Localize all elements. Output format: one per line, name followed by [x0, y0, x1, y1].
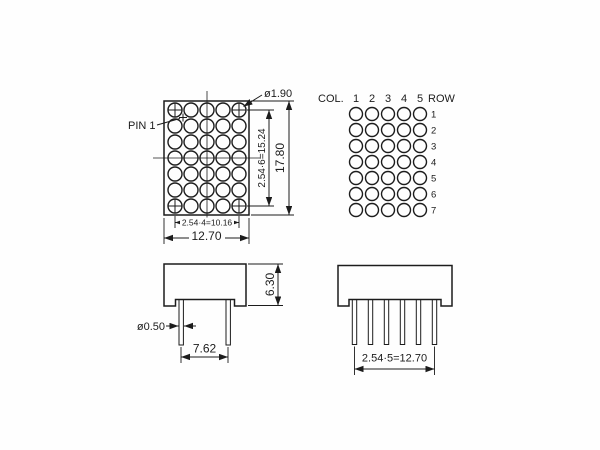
row-header-label: ROW	[428, 93, 456, 105]
pin-diameter-label: ø0.50	[137, 321, 165, 333]
pin-3	[384, 300, 388, 345]
datasheet-drawing-page: PIN 1 ø1.90 2.54·6=15.24 17.80 2.54	[0, 0, 600, 450]
row-number-3: 3	[431, 142, 436, 153]
row-number-7: 7	[431, 206, 436, 217]
bottom-view: 2.54·5=12.70	[338, 266, 452, 376]
pin-spacing-label: 7.62	[193, 342, 217, 356]
dot-matrix-technical-drawing: PIN 1 ø1.90 2.54·6=15.24 17.80 2.54	[0, 0, 600, 450]
dot-row	[350, 172, 427, 185]
row-number-1: 1	[431, 110, 436, 121]
row-number-2: 2	[431, 126, 436, 137]
pin-6	[432, 300, 436, 345]
dot-row	[350, 108, 427, 121]
pin-map-view: COL. 1 2 3 4 5 ROW 1 2 3 4 5 6 7	[318, 93, 456, 217]
col-number-4: 4	[401, 93, 407, 105]
pin-1	[352, 300, 356, 345]
side-view: ø0.50 7.62 6.30	[137, 264, 283, 363]
pin-4	[400, 300, 404, 345]
led-diameter-label: ø1.90	[264, 88, 292, 100]
dot-row	[350, 140, 427, 153]
dim-pin-diameter: ø0.50	[137, 321, 196, 333]
side-body-height-label: 6.30	[263, 272, 277, 296]
pin-2	[368, 300, 372, 345]
row-number-6: 6	[431, 190, 436, 201]
pin-row	[352, 300, 436, 345]
dot-row	[350, 188, 427, 201]
dot-row	[350, 204, 427, 217]
pin-5	[416, 300, 420, 345]
led-diameter-callout: ø1.90	[244, 88, 293, 107]
dot-row	[350, 124, 427, 137]
row-number-5: 5	[431, 174, 436, 185]
col-pitch-label: 2.54·4=10.16	[182, 218, 233, 228]
col-header-label: COL.	[318, 93, 344, 105]
pin-pitch-label: 2.54·5=12.70	[362, 353, 427, 365]
front-view: PIN 1 ø1.90 2.54·6=15.24 17.80 2.54	[128, 88, 294, 244]
right-pin	[226, 300, 230, 346]
dim-side-body-height: 6.30	[248, 264, 283, 306]
side-body-outline	[164, 264, 246, 306]
col-number-3: 3	[385, 93, 391, 105]
body-width-label: 12.70	[191, 229, 221, 243]
left-pin	[179, 300, 183, 346]
dot-row	[350, 156, 427, 169]
dim-pin-pitch: 2.54·5=12.70	[355, 347, 435, 376]
dim-pin-spacing: 7.62	[181, 342, 228, 364]
row-pitch-label: 2.54·6=15.24	[257, 128, 268, 188]
col-number-2: 2	[369, 93, 375, 105]
body-height-label: 17.80	[273, 143, 287, 173]
col-number-5: 5	[417, 93, 423, 105]
col-number-1: 1	[353, 93, 359, 105]
pin-map-dot-grid	[350, 108, 427, 217]
dim-col-pitch: 2.54·4=10.16	[175, 216, 239, 228]
pin1-label: PIN 1	[128, 120, 156, 132]
row-number-4: 4	[431, 158, 436, 169]
